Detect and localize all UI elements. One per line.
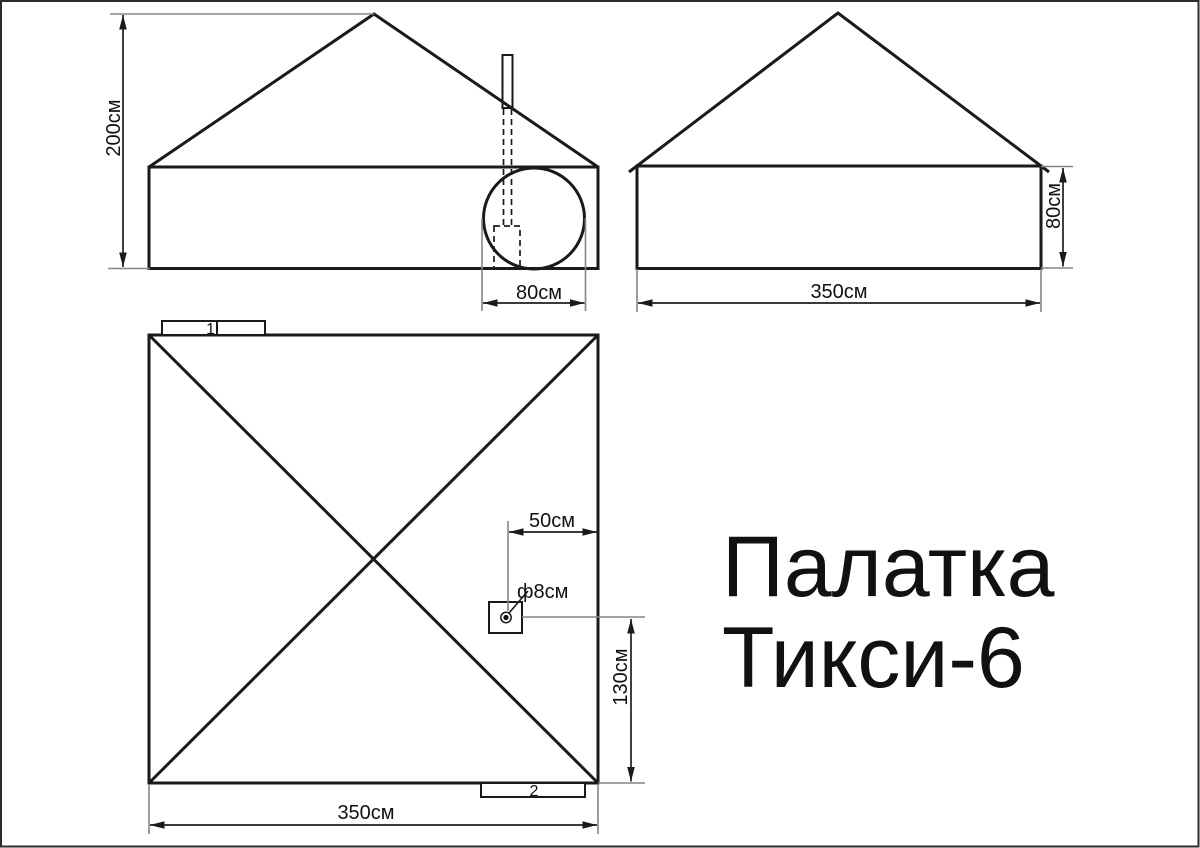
front-height-dim-label: 200см — [103, 99, 125, 156]
side-view: 80см 350см — [629, 13, 1073, 312]
plan-chimney-hole-dot — [503, 615, 508, 620]
plan-view: 1 2 ф8см 50см 130см 350см — [149, 321, 645, 834]
plan-width-dim-label: 350см — [337, 802, 394, 824]
plan-tab2-label: 2 — [530, 783, 539, 800]
side-length-dim-label: 350см — [810, 281, 867, 303]
front-roof-outline — [149, 14, 598, 167]
front-entrance-dim-label: 80см — [516, 282, 562, 304]
title-line-2: Тикси-6 — [722, 610, 1025, 706]
front-wall-rectangle — [149, 167, 598, 269]
title-line-1: Палатка — [722, 519, 1055, 615]
side-roof-outline — [629, 13, 1049, 172]
side-height-dim-label: 80см — [1043, 183, 1065, 229]
side-wall-rectangle — [637, 166, 1041, 269]
plan-chimney-diameter-label: ф8см — [517, 581, 568, 603]
plan-tab1-label: 1 — [206, 321, 215, 338]
plan-offset-dim-label: 50см — [529, 510, 575, 532]
drawing-title: Палатка Тикси-6 — [722, 519, 1055, 706]
front-chimney-pipe — [503, 55, 513, 108]
front-view: 200см 80см — [103, 14, 598, 311]
tent-drawing-canvas: 200см 80см 80см 350см 1 2 — [0, 0, 1200, 848]
plan-distance-dim-label: 130см — [610, 648, 632, 705]
